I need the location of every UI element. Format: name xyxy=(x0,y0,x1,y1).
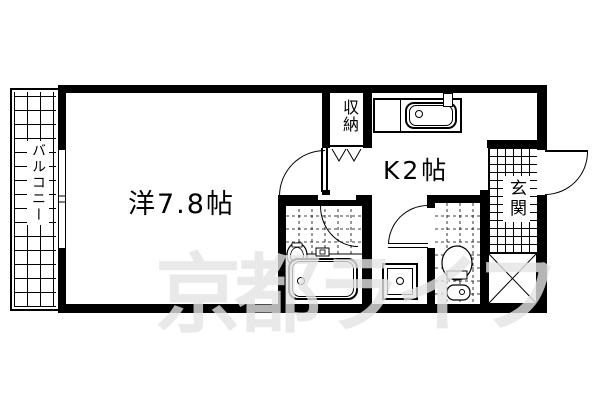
kitchen-label: K2帖 xyxy=(383,151,449,187)
wall-left-upper xyxy=(58,85,66,150)
sliding-window-icon xyxy=(58,150,66,248)
wall-closet-right xyxy=(363,85,372,148)
wall-entrance-top xyxy=(487,140,547,148)
floor-plan: バルコニー xyxy=(0,0,600,400)
toilet-door-arc xyxy=(388,205,428,245)
wall-left-lower xyxy=(58,248,66,308)
folding-door-icon xyxy=(347,149,361,161)
watermark-text: 京都ライフ xyxy=(155,250,595,360)
front-door-arc xyxy=(545,152,588,195)
kitchen-sink-drain xyxy=(415,110,423,118)
western-room-label: 洋7.8帖 xyxy=(128,182,235,221)
wall-toilet-left-stub xyxy=(427,195,435,208)
wall-toilet-top xyxy=(427,195,488,203)
folding-door-icon xyxy=(332,149,346,161)
closet-label: 収納 xyxy=(337,99,361,133)
kitchen-faucet-icon xyxy=(443,93,453,107)
entrance-label: 玄関 xyxy=(503,176,530,222)
wall-room-kitchen-divider xyxy=(322,85,330,148)
kitchen-counter-divider xyxy=(400,98,401,133)
balcony-label: バルコニー xyxy=(27,141,49,225)
wall-top xyxy=(58,85,547,93)
